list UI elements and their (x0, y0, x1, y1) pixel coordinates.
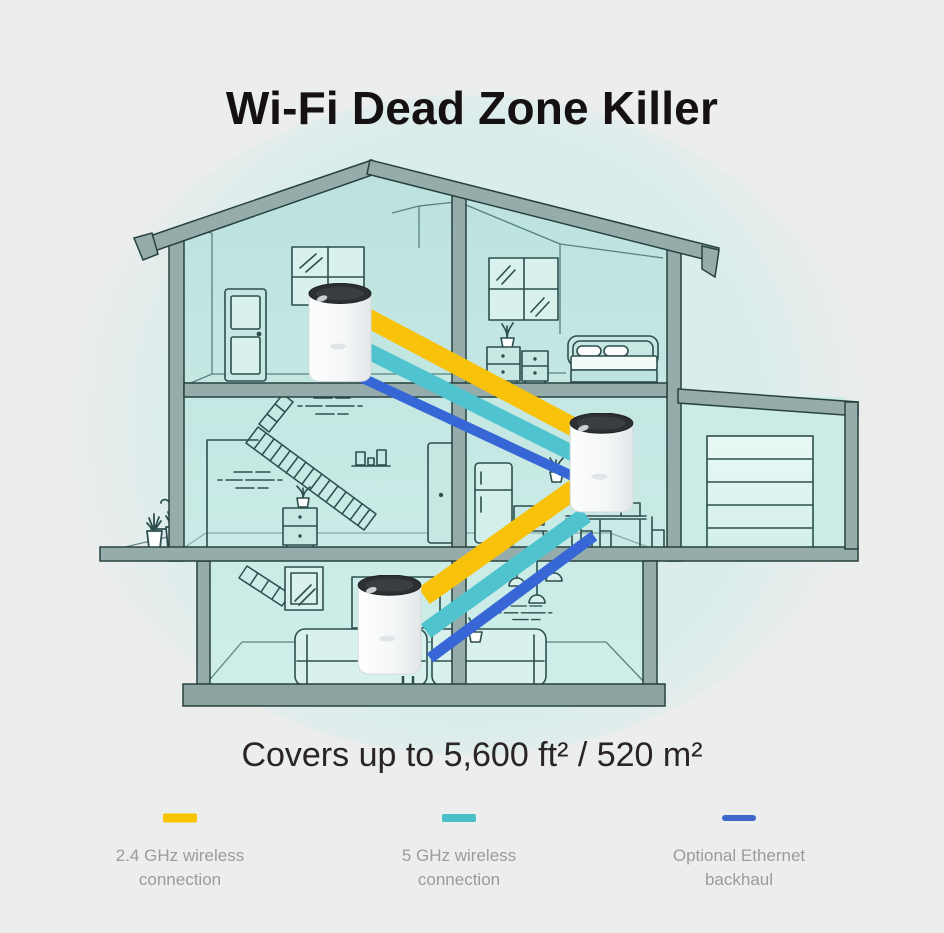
deco-unit-attic (309, 284, 371, 382)
deco-unit-middle-floor (570, 413, 633, 512)
left-wall (169, 236, 184, 561)
wall-frame (285, 567, 323, 610)
bed (568, 336, 658, 386)
garage-door (707, 436, 813, 549)
bedroom-window (489, 258, 558, 320)
garage-right-wall (845, 402, 858, 549)
deco-unit-living-room (358, 575, 421, 674)
base-slab (183, 684, 665, 706)
page-title: Wi-Fi Dead Zone Killer (0, 81, 944, 135)
middle-floor-door (428, 443, 455, 543)
house-coverage-illustration (0, 0, 944, 933)
ground-left-wall (197, 561, 210, 687)
coverage-text: Covers up to 5,600 ft² / 520 m² (0, 736, 944, 775)
ground-right-wall (643, 561, 657, 686)
page: Wi-Fi Dead Zone Killer Covers up to 5,60… (0, 0, 944, 933)
attic-door (225, 289, 266, 381)
